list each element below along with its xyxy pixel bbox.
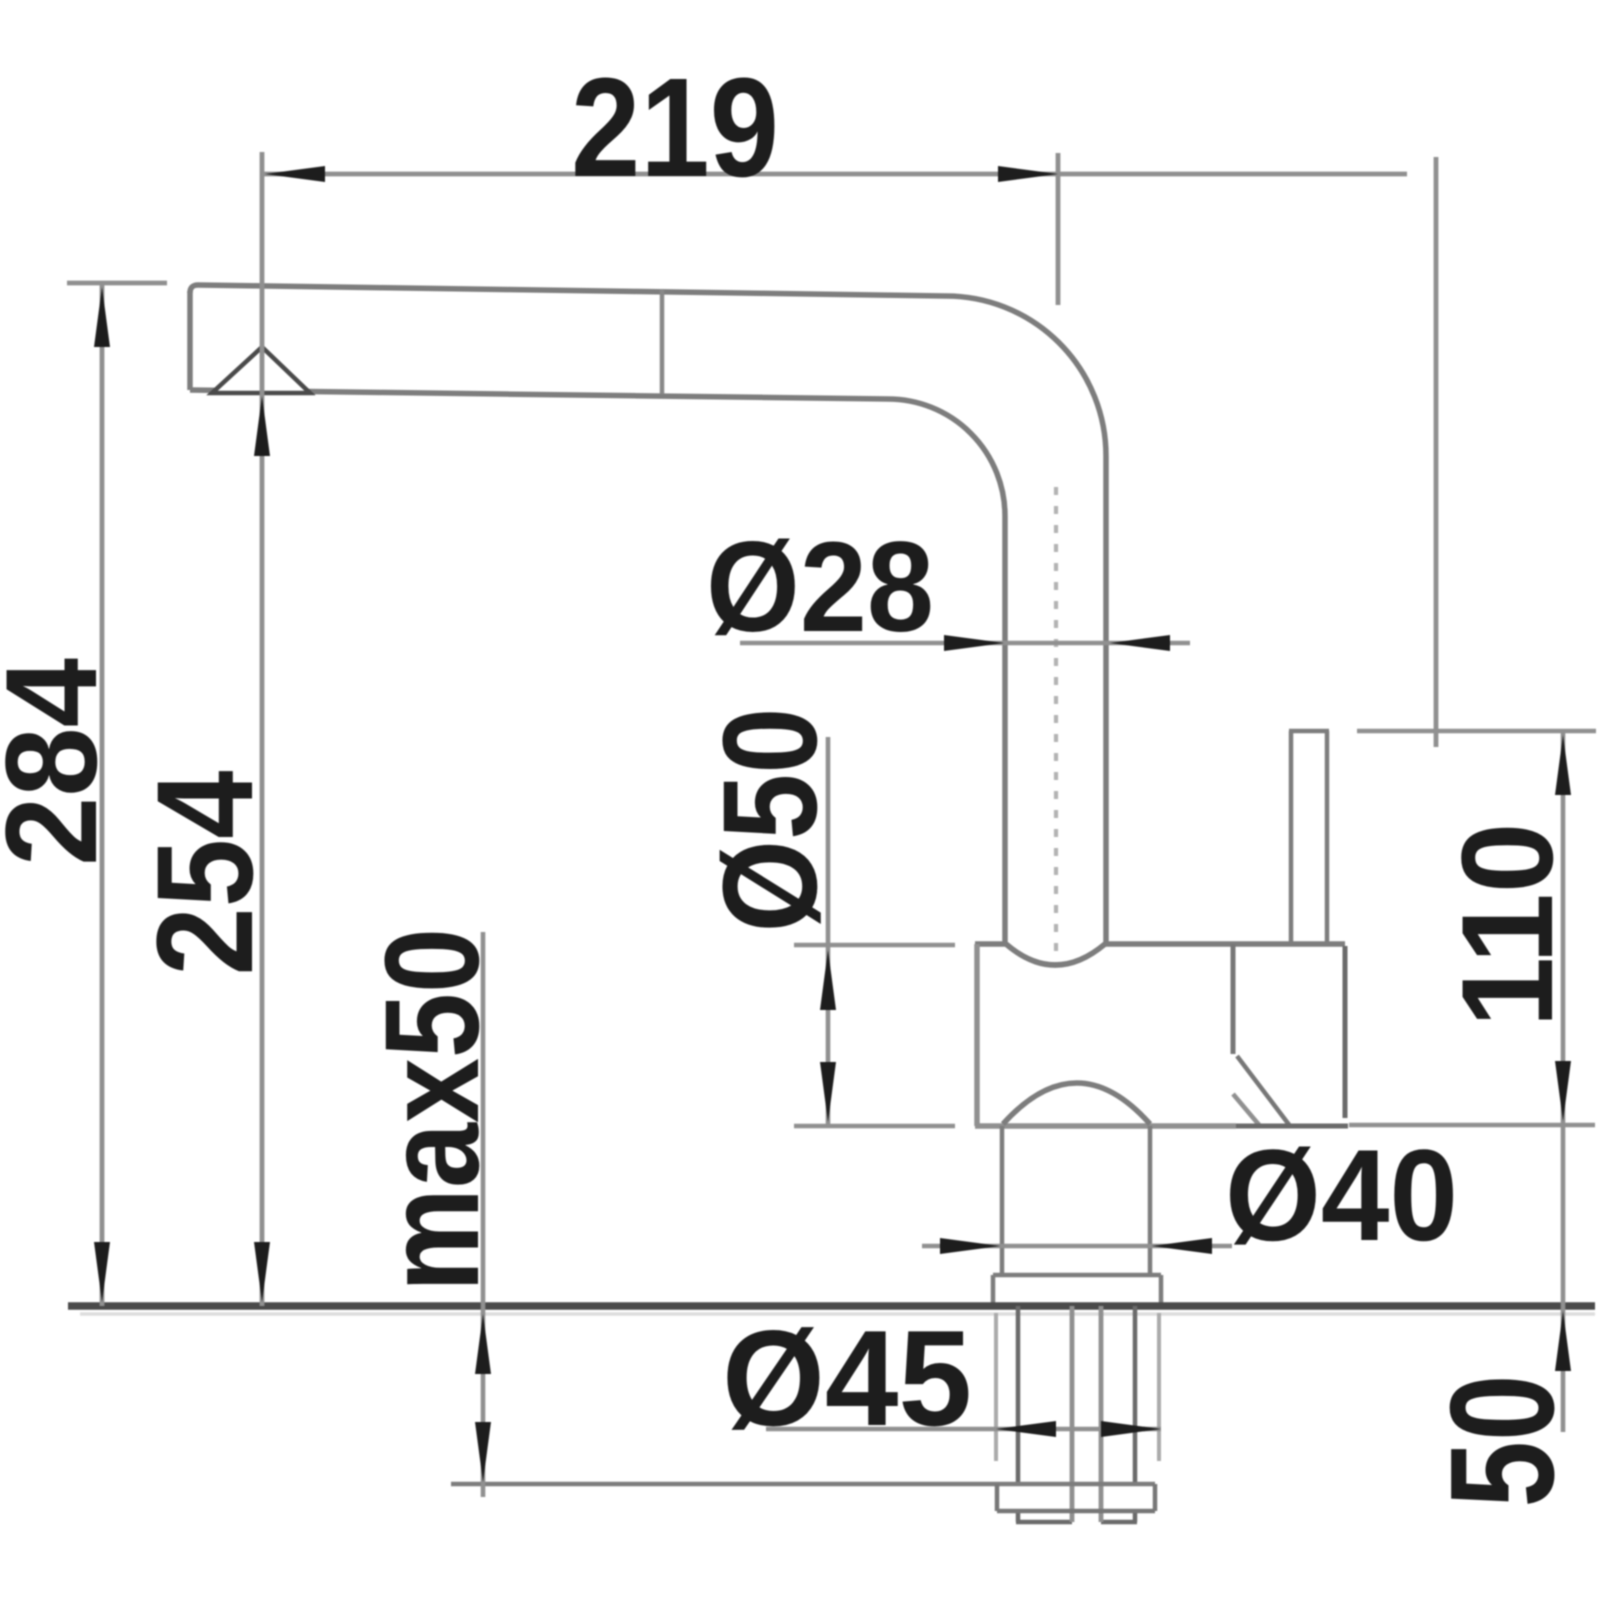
svg-text:219: 219 <box>571 48 779 206</box>
svg-text:Ø50: Ø50 <box>696 708 845 933</box>
svg-text:284: 284 <box>0 658 124 866</box>
svg-text:Ø45: Ø45 <box>722 1302 972 1454</box>
svg-text:254: 254 <box>129 771 282 976</box>
svg-text:110: 110 <box>1434 823 1580 1028</box>
svg-text:50: 50 <box>1420 1375 1585 1508</box>
svg-text:Ø40: Ø40 <box>1225 1122 1458 1268</box>
svg-text:max50: max50 <box>358 928 507 1292</box>
svg-text:Ø28: Ø28 <box>706 516 934 659</box>
